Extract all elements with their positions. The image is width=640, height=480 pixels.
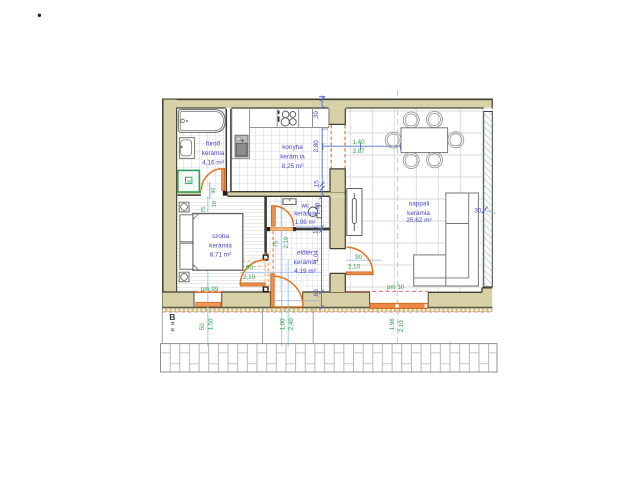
svg-text:kerám ia: kerám ia bbox=[280, 154, 305, 161]
svg-text:kerámia: kerámia bbox=[294, 211, 317, 218]
svg-text:nappali: nappali bbox=[409, 200, 430, 207]
svg-text:10: 10 bbox=[212, 201, 218, 207]
svg-text:90: 90 bbox=[211, 188, 217, 194]
svg-text:,15: ,15 bbox=[313, 180, 320, 189]
svg-text:4,16 m²: 4,16 m² bbox=[202, 159, 224, 166]
svg-text:konyha: konyha bbox=[282, 144, 303, 151]
svg-text:,30: ,30 bbox=[313, 111, 320, 120]
svg-text:8,25 m²: 8,25 m² bbox=[282, 163, 304, 170]
svg-text:1,50: 1,50 bbox=[208, 318, 215, 331]
svg-text:1,00: 1,00 bbox=[315, 202, 322, 215]
svg-text:1,98 m²: 1,98 m² bbox=[295, 219, 316, 226]
svg-text:4,19 m²: 4,19 m² bbox=[294, 268, 316, 275]
svg-text:fürdő: fürdő bbox=[206, 141, 221, 148]
svg-text:2,10: 2,10 bbox=[348, 263, 361, 270]
svg-text:kerámia: kerámia bbox=[407, 210, 430, 217]
svg-text:90: 90 bbox=[246, 265, 253, 272]
svg-text:30: 30 bbox=[474, 207, 482, 214]
svg-text:kerámia: kerámia bbox=[209, 243, 232, 250]
svg-text:előtér: előtér bbox=[297, 249, 314, 256]
svg-text:8,71 m²: 8,71 m² bbox=[210, 252, 232, 259]
svg-text:2,87: 2,87 bbox=[353, 148, 366, 155]
svg-text:2,10: 2,10 bbox=[398, 320, 405, 333]
svg-text:,10: ,10 bbox=[313, 226, 320, 235]
svg-text:2,10: 2,10 bbox=[243, 274, 256, 281]
svg-text:2,80: 2,80 bbox=[313, 140, 320, 153]
svg-text:wc: wc bbox=[300, 203, 309, 210]
svg-text:1,40: 1,40 bbox=[352, 139, 365, 146]
svg-text:25,62 m²: 25,62 m² bbox=[406, 217, 431, 224]
svg-text:50: 50 bbox=[199, 323, 206, 330]
svg-text:w: w bbox=[187, 179, 191, 185]
svg-text:B: B bbox=[169, 312, 175, 322]
svg-text:90: 90 bbox=[355, 254, 362, 261]
svg-text:75: 75 bbox=[201, 207, 207, 213]
svg-text:75: 75 bbox=[273, 240, 279, 247]
svg-text:szoba: szoba bbox=[212, 233, 229, 240]
svg-text:2,40: 2,40 bbox=[288, 318, 295, 331]
svg-text:2,10: 2,10 bbox=[284, 236, 290, 248]
svg-text:1,04: 1,04 bbox=[313, 250, 320, 263]
svg-text:1,00: 1,00 bbox=[279, 318, 286, 331]
svg-text:,60: ,60 bbox=[313, 289, 320, 298]
svg-text:pm 30: pm 30 bbox=[387, 284, 405, 291]
svg-text:pm 99: pm 99 bbox=[201, 286, 219, 293]
svg-text:kerámia: kerámia bbox=[202, 150, 225, 157]
svg-text:1,96: 1,96 bbox=[389, 318, 396, 331]
